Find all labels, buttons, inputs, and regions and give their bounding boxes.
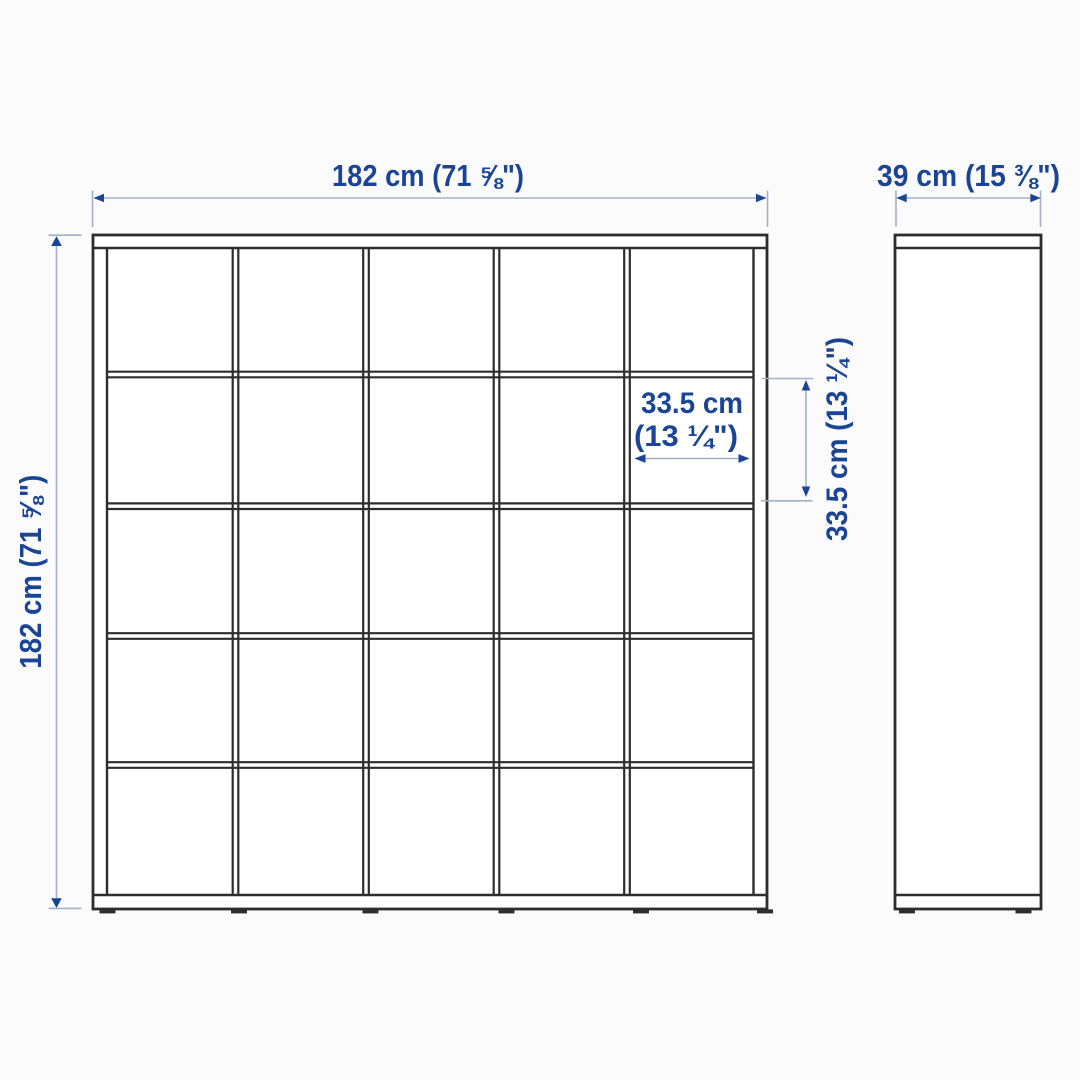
svg-text:(13 ¼"): (13 ¼")	[634, 420, 738, 453]
svg-text:33.5 cm: 33.5 cm	[641, 387, 743, 420]
svg-text:33.5 cm (13 ¼"): 33.5 cm (13 ¼")	[821, 337, 854, 541]
svg-text:182 cm (71 ⅝"): 182 cm (71 ⅝")	[332, 158, 524, 193]
svg-text:182 cm (71 ⅝"): 182 cm (71 ⅝")	[13, 475, 48, 669]
svg-text:39 cm (15 ⅜"): 39 cm (15 ⅜")	[877, 158, 1060, 193]
